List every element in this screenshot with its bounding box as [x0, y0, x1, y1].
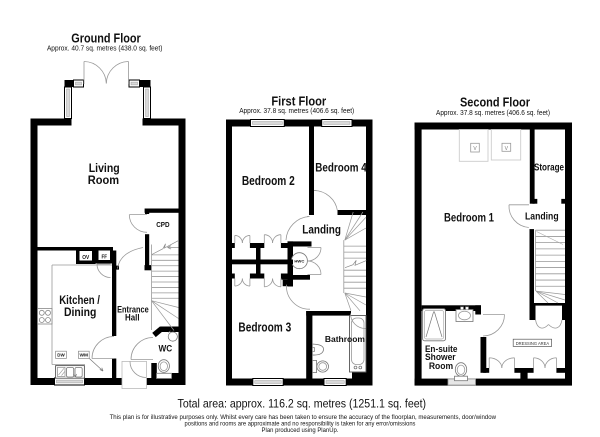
- svg-text:Plan produced using PlanUp.: Plan produced using PlanUp.: [262, 427, 339, 434]
- svg-text:FF: FF: [101, 255, 107, 261]
- svg-text:Total area: approx. 116.2 sq.: Total area: approx. 116.2 sq. metres (12…: [178, 397, 427, 411]
- svg-text:Bathroom: Bathroom: [325, 334, 365, 344]
- svg-text:DRESSING AREA: DRESSING AREA: [516, 341, 550, 347]
- svg-text:CPD: CPD: [156, 220, 169, 229]
- svg-text:DW: DW: [57, 353, 65, 358]
- svg-text:Approx. 37.8 sq. metres (406.6: Approx. 37.8 sq. metres (406.6 sq. feet): [239, 108, 354, 115]
- svg-text:Bedroom 3: Bedroom 3: [238, 321, 291, 335]
- svg-text:Room: Room: [88, 173, 119, 187]
- svg-text:Ground Floor: Ground Floor: [71, 31, 141, 45]
- svg-text:Storage: Storage: [534, 162, 564, 173]
- svg-text:Bedroom 1: Bedroom 1: [444, 211, 494, 225]
- svg-text:Room: Room: [429, 361, 453, 372]
- svg-text:WM: WM: [80, 353, 89, 358]
- svg-text:Dining: Dining: [64, 305, 96, 319]
- svg-text:Second Floor: Second Floor: [460, 95, 530, 109]
- svg-text:WC: WC: [158, 343, 172, 353]
- svg-text:Approx. 40.7 sq. metres (438.0: Approx. 40.7 sq. metres (438.0 sq. feet): [47, 46, 163, 53]
- svg-text:Landing: Landing: [525, 211, 559, 223]
- svg-text:HWC: HWC: [294, 259, 304, 263]
- svg-text:Hall: Hall: [125, 312, 140, 322]
- svg-text:Bedroom 2: Bedroom 2: [242, 174, 295, 188]
- svg-text:Approx. 37.8 sq. metres (406.6: Approx. 37.8 sq. metres (406.6 sq. feet): [436, 110, 550, 117]
- svg-text:First Floor: First Floor: [271, 94, 326, 108]
- svg-text:Landing: Landing: [302, 222, 341, 236]
- svg-text:Bedroom 4: Bedroom 4: [315, 161, 367, 175]
- svg-text:OV: OV: [82, 255, 90, 261]
